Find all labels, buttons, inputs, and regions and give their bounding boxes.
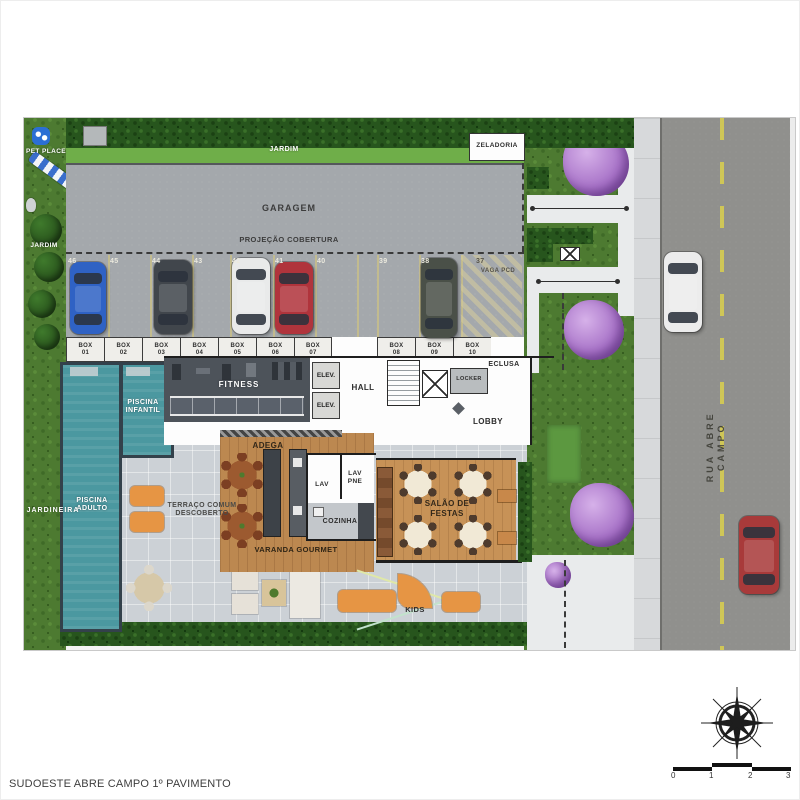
- hedge-row: [527, 228, 593, 244]
- box-label: BOX: [390, 343, 404, 350]
- vaga-pcd-label: VAGA PCD: [474, 268, 522, 275]
- gourmet-counter: [264, 450, 280, 536]
- stairwell: [387, 360, 420, 406]
- box-label: BOX: [466, 343, 480, 350]
- deck-armchair: [232, 570, 258, 590]
- stall-number: 39: [379, 258, 388, 266]
- tree: [34, 252, 64, 282]
- wall: [376, 458, 516, 460]
- salon-side-hedge: [518, 462, 532, 562]
- car-windshield: [743, 527, 775, 538]
- gourmet-table: [220, 453, 264, 497]
- salao-label: SALÃO DE FESTAS: [412, 499, 482, 518]
- deck-coffee-table: [262, 580, 286, 606]
- lobby-label: LOBBY: [463, 417, 513, 427]
- scale-tick: 2: [748, 771, 752, 780]
- party-table: [453, 515, 493, 555]
- car-roof: [75, 286, 101, 312]
- stall-number: 42: [232, 258, 241, 266]
- scale-segment: [673, 767, 712, 771]
- stall-line: [377, 255, 379, 337]
- stall-line: [108, 255, 110, 337]
- fitness-track: [170, 396, 304, 416]
- stall-line: [192, 255, 194, 337]
- sink: [293, 458, 302, 467]
- lav-label: LAV: [309, 481, 335, 489]
- box-label: BOX: [79, 343, 93, 350]
- box-label: BOX: [155, 343, 169, 350]
- scale-tick: 0: [671, 771, 675, 780]
- adega-wall: [220, 430, 342, 437]
- elevator-label: ELEV.: [317, 372, 335, 379]
- party-table: [398, 464, 438, 504]
- party-table: [453, 464, 493, 504]
- pool-steps: [126, 367, 150, 376]
- floor-plan-page: 46 45 44 43 42 41 40 39 38 37 BOX01 BOX0…: [0, 0, 800, 800]
- kids-label: KIDS: [395, 605, 435, 614]
- car-rear-window: [74, 314, 102, 325]
- shrub-row: [547, 425, 581, 483]
- adega-label: ADEGA: [238, 441, 298, 451]
- elevator-1: ELEV.: [312, 362, 340, 389]
- garage-car-red: [275, 262, 313, 334]
- box-label: BOX: [231, 343, 245, 350]
- street-car-white: [664, 252, 702, 332]
- purple-bush: [545, 562, 571, 588]
- scale-segment: [712, 763, 752, 767]
- gym-equipment: [222, 364, 231, 380]
- pool-steps: [70, 367, 98, 376]
- deck-sofa: [290, 572, 320, 618]
- stall-number: 43: [194, 258, 203, 266]
- kids-play-bench: [338, 590, 396, 612]
- car-rear-window: [668, 312, 698, 323]
- stall-line: [315, 255, 317, 337]
- dog-figure: [26, 198, 36, 212]
- garage-car-blue: [70, 262, 106, 334]
- car-windshield: [236, 269, 266, 280]
- car-roof: [744, 540, 774, 572]
- jardim-top-label: JARDIM: [254, 146, 314, 154]
- bottom-hedge: [60, 622, 527, 646]
- utility-marker-box: [560, 247, 580, 261]
- salon-bench: [498, 490, 516, 502]
- compass-rose: [701, 687, 773, 759]
- tree: [34, 324, 60, 350]
- zeladoria-label: ZELADORIA: [470, 142, 524, 150]
- projection-dashed-line-v: [522, 163, 524, 252]
- wall: [306, 539, 376, 541]
- deck-round-table: [126, 565, 172, 611]
- salon-bench: [498, 532, 516, 544]
- car-rear-window: [158, 314, 188, 325]
- jardineira-label: JARDINEIRA: [24, 507, 82, 515]
- stall-number: 45: [110, 258, 119, 266]
- car-rear-window: [425, 318, 453, 329]
- street-far-edge: [790, 118, 795, 650]
- site-plan: 46 45 44 43 42 41 40 39 38 37 BOX01 BOX0…: [23, 117, 796, 651]
- car-roof: [237, 282, 265, 312]
- buffet-counter: [378, 468, 392, 556]
- stall-number: 38: [421, 258, 430, 266]
- stall-line: [357, 255, 359, 337]
- car-roof: [669, 276, 697, 310]
- purple-tree: [570, 483, 634, 547]
- eclusa-label: ECLUSA: [479, 361, 529, 369]
- car-rear-window: [743, 574, 775, 585]
- pool-lounger: [130, 512, 164, 532]
- scale-bar: 0 1 2 3: [673, 763, 791, 783]
- party-table: [398, 515, 438, 555]
- stall-line: [150, 255, 152, 337]
- stall-number: 41: [275, 258, 284, 266]
- stall-number: 46: [68, 258, 77, 266]
- tree: [28, 290, 56, 318]
- scale-tick: 1: [709, 771, 713, 780]
- car-roof: [159, 284, 187, 312]
- gym-equipment: [246, 363, 256, 377]
- gym-treadmills: [272, 362, 302, 380]
- purple-tree: [564, 300, 624, 360]
- garden-path-upper: [527, 195, 634, 223]
- box-label: BOX: [428, 343, 442, 350]
- varanda-label: VARANDA GOURMET: [254, 545, 338, 554]
- elevator-label: ELEV.: [317, 402, 335, 409]
- box-label: BOX: [269, 343, 283, 350]
- cooktop: [293, 506, 302, 515]
- car-windshield: [279, 273, 309, 284]
- garage-car-suv: [421, 258, 457, 338]
- elevator-2: ELEV.: [312, 392, 340, 419]
- street-name-label: RUA ABRE CAMPO: [705, 387, 727, 507]
- fitness-label: FITNESS: [209, 380, 269, 390]
- garagem-label: GARAGEM: [214, 203, 364, 214]
- stall-number: 44: [152, 258, 161, 266]
- box-number: 01: [82, 350, 89, 357]
- car-windshield: [425, 269, 453, 280]
- pool-lounger: [130, 486, 164, 506]
- hall-label: HALL: [343, 383, 383, 393]
- pet-place-label: PET PLACE: [24, 148, 68, 156]
- survey-line: [532, 208, 627, 209]
- street-car-red: [739, 516, 779, 594]
- scale-tick: 3: [786, 771, 790, 780]
- service-elevator-shaft: [422, 370, 448, 398]
- box-label: BOX: [306, 343, 320, 350]
- jardim-left-label: JARDIM: [24, 242, 64, 250]
- storage-box: BOX01: [66, 337, 105, 362]
- car-rear-window: [236, 314, 266, 325]
- car-windshield: [74, 273, 102, 284]
- bush-cluster: [527, 244, 553, 262]
- cozinha-label: COZINHA: [310, 518, 370, 526]
- terraco-label: TERRAÇO COMUM DESCOBERTO: [165, 502, 239, 519]
- pet-place-icon: [32, 127, 50, 145]
- car-roof: [280, 286, 308, 312]
- wall: [376, 560, 522, 563]
- gym-equipment: [196, 368, 210, 374]
- wall: [306, 453, 308, 541]
- street-centerline: [720, 118, 724, 650]
- car-rear-window: [279, 314, 309, 325]
- gym-equipment: [172, 364, 181, 380]
- garage-car-dark: [154, 260, 192, 334]
- hedge-block: [527, 167, 549, 189]
- stall-number: 37: [476, 258, 485, 266]
- box-label: BOX: [117, 343, 131, 350]
- cozinha-sink: [314, 508, 323, 516]
- piscina-infantil-label: PISCINA INFANTIL: [117, 399, 169, 416]
- projecao-label: PROJEÇÃO COBERTURA: [209, 235, 369, 244]
- car-windshield: [158, 271, 188, 282]
- locker-label: LOCKER: [452, 376, 486, 383]
- equipment-box: [83, 126, 107, 146]
- garage-car-white: [232, 258, 270, 334]
- lav-pne-label: LAV PNE: [342, 470, 368, 486]
- box-label: BOX: [193, 343, 207, 350]
- car-windshield: [668, 263, 698, 274]
- sidewalk: [634, 118, 660, 650]
- kids-playhouse: [442, 592, 480, 612]
- plan-title: SUDOESTE ABRE CAMPO 1º PAVIMENTO: [9, 778, 231, 790]
- garden-plaza: [527, 555, 634, 650]
- stall-number: 40: [317, 258, 326, 266]
- storage-box: BOX02: [104, 337, 143, 362]
- projection-dashed-line: [66, 252, 524, 254]
- car-roof: [426, 282, 452, 316]
- top-hedge: [66, 118, 634, 148]
- building-wall-right: [530, 356, 532, 445]
- deck-armchair: [232, 594, 258, 614]
- box-number: 02: [120, 350, 127, 357]
- survey-line: [538, 281, 618, 282]
- boundary-dashed-line: [564, 560, 566, 648]
